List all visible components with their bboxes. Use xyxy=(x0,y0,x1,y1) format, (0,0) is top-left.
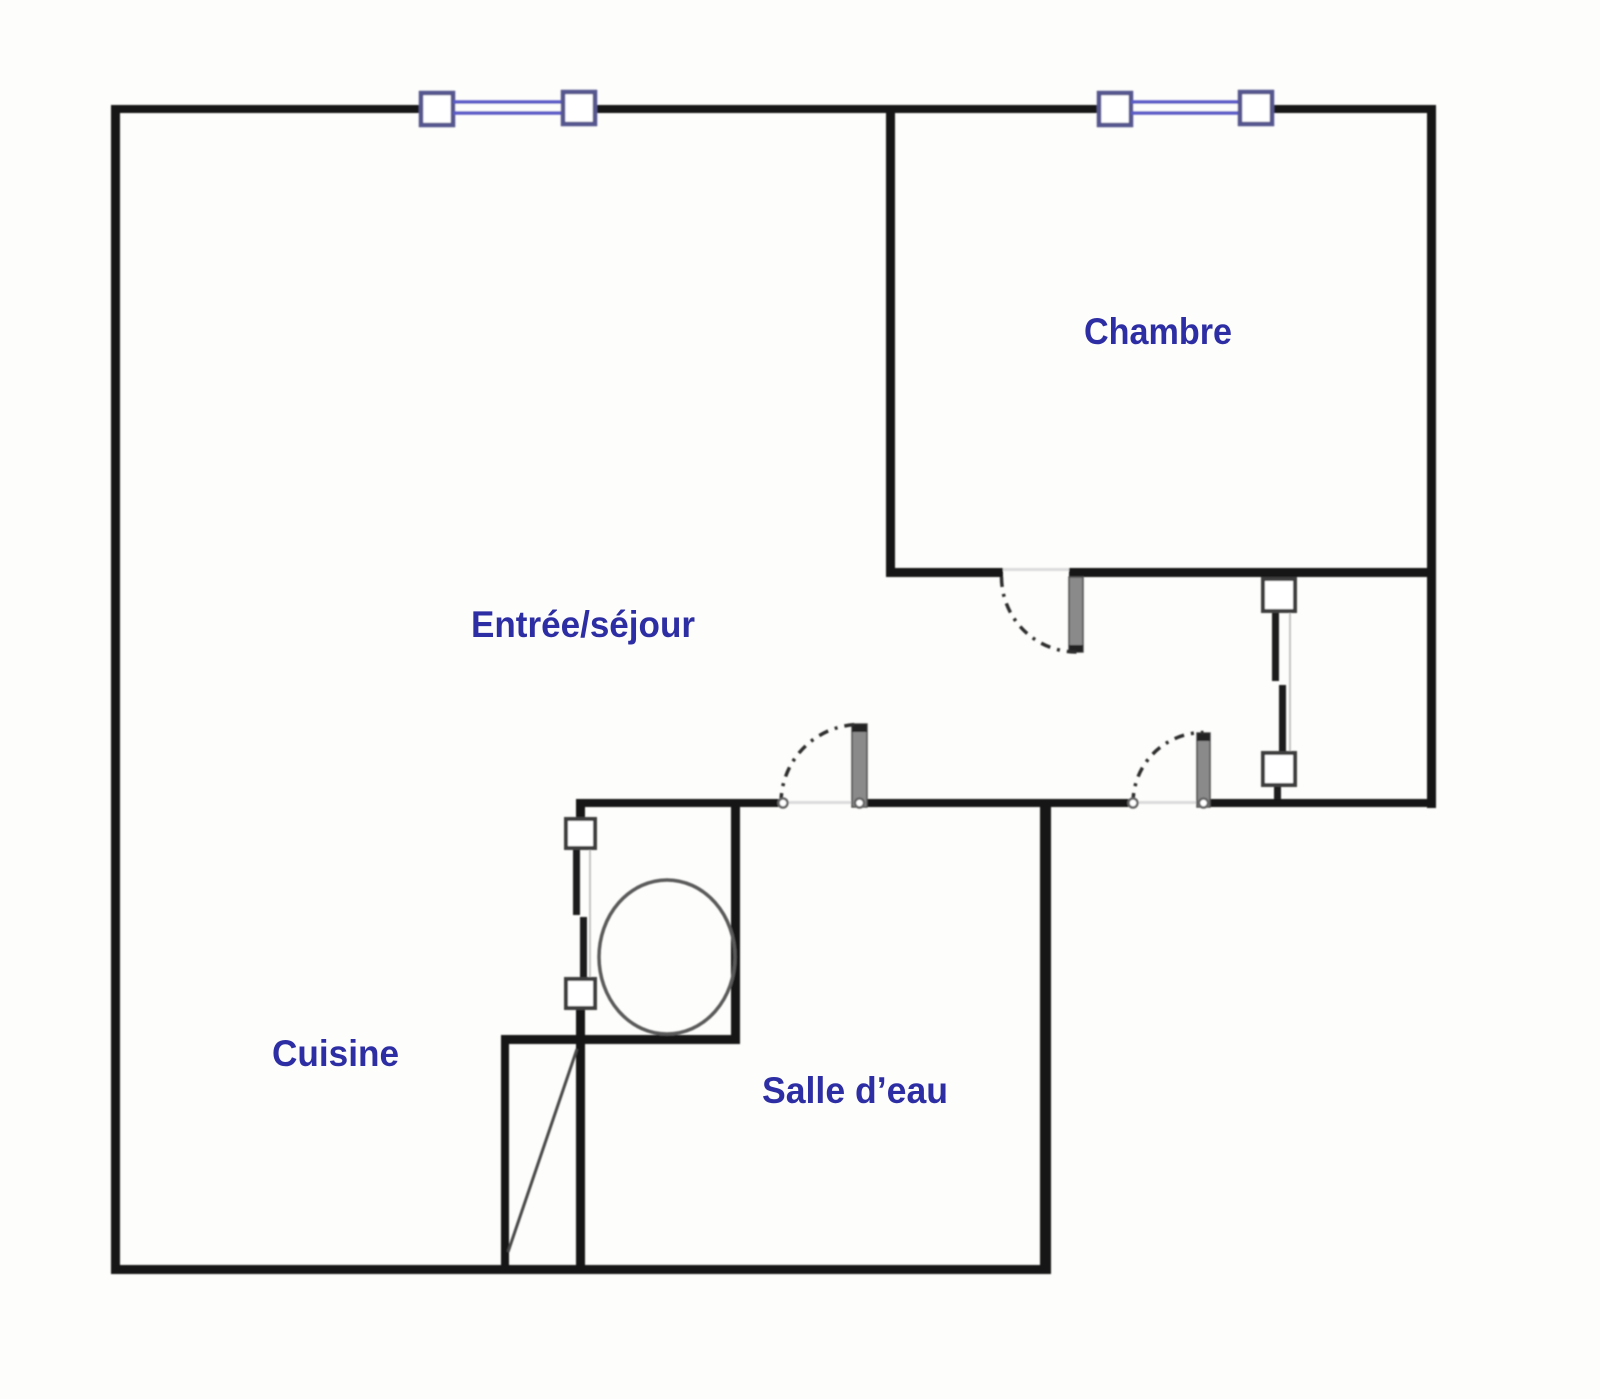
svg-text:Entrée/séjour: Entrée/séjour xyxy=(471,604,695,645)
svg-text:Cuisine: Cuisine xyxy=(272,1033,399,1074)
svg-text:Salle d’eau: Salle d’eau xyxy=(762,1070,948,1111)
svg-text:Chambre: Chambre xyxy=(1084,311,1232,352)
